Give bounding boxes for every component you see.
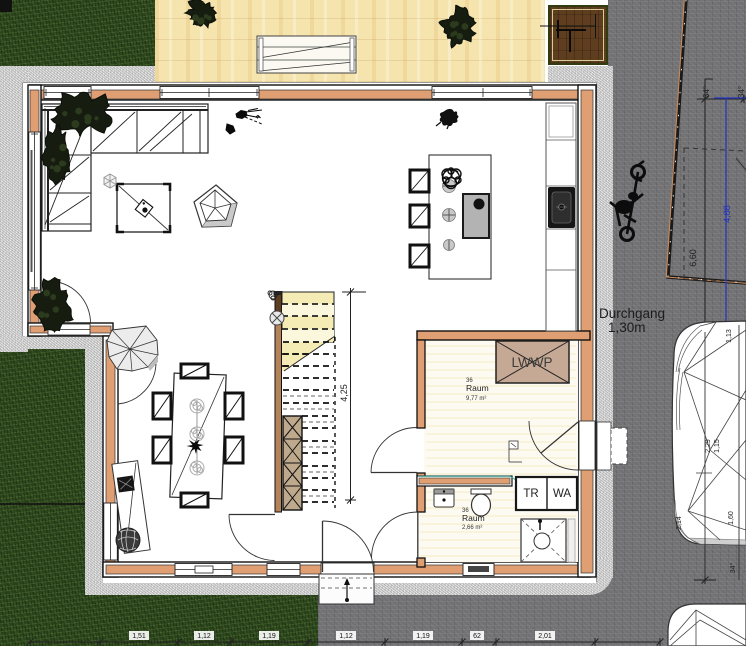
- svg-text:4,25: 4,25: [339, 384, 349, 402]
- svg-text:LWWP: LWWP: [512, 355, 553, 370]
- svg-text:6,60: 6,60: [688, 249, 698, 267]
- svg-text:1,15: 1,15: [714, 439, 721, 453]
- svg-text:1,19: 1,19: [262, 633, 276, 640]
- svg-text:1,51: 1,51: [132, 633, 146, 640]
- svg-text:4,88: 4,88: [722, 205, 732, 223]
- svg-text:TR: TR: [523, 488, 538, 500]
- svg-text:1,19: 1,19: [416, 633, 430, 640]
- svg-text:Durchgang: Durchgang: [599, 306, 665, 321]
- svg-text:Raum: Raum: [462, 513, 485, 523]
- svg-text:1,12: 1,12: [339, 633, 353, 640]
- svg-text:9,77 m²: 9,77 m²: [466, 396, 486, 402]
- svg-text:34°: 34°: [737, 86, 746, 98]
- svg-text:Raum: Raum: [466, 383, 489, 393]
- svg-text:WA: WA: [553, 488, 571, 500]
- svg-text:34°: 34°: [702, 86, 711, 98]
- svg-text:62: 62: [473, 633, 481, 640]
- svg-text:1,30m: 1,30m: [608, 320, 646, 335]
- svg-text:2,29: 2,29: [705, 439, 712, 453]
- svg-text:2,14: 2,14: [676, 516, 683, 530]
- svg-text:2,01: 2,01: [538, 633, 552, 640]
- svg-text:1,60: 1,60: [728, 511, 735, 525]
- svg-text:1,12: 1,12: [197, 633, 211, 640]
- svg-text:34°: 34°: [729, 563, 737, 574]
- svg-text:1,13: 1,13: [726, 329, 733, 343]
- svg-text:2,66 m²: 2,66 m²: [462, 525, 482, 531]
